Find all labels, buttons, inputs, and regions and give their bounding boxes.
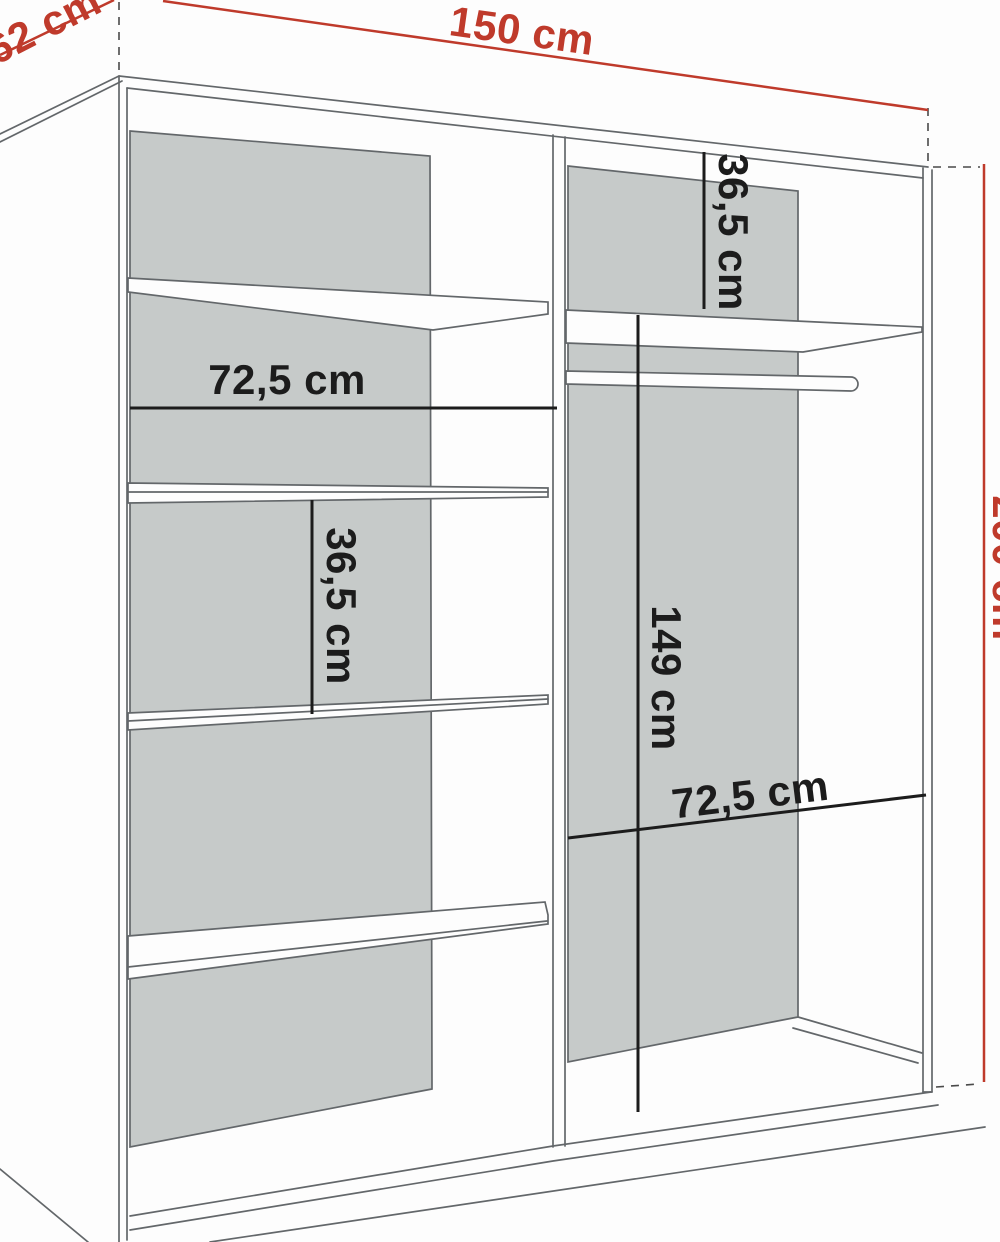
depth-label: 62 cm (0, 0, 108, 74)
extension-bottom-right (936, 1084, 979, 1087)
cabinet-structure (0, 76, 985, 1242)
right-top-shelf-offset-label: 36,5 cm (710, 153, 757, 311)
left-shelf-spacing-label: 36,5 cm (318, 527, 365, 685)
overall-width-label: 150 cm (447, 0, 598, 64)
wardrobe-diagram-canvas: 150 cm 62 cm 200 cm 72,5 cm 36,5 cm 36,5… (0, 0, 1000, 1242)
left-shelf-2 (128, 483, 548, 503)
overall-height-label: 200 cm (984, 495, 1000, 640)
left-side-bottom-edge (0, 1169, 88, 1242)
base-bottom-edge (210, 1127, 985, 1242)
left-section-width-label: 72,5 cm (208, 356, 366, 403)
wardrobe-dimension-diagram: 150 cm 62 cm 200 cm 72,5 cm 36,5 cm 36,5… (0, 0, 1000, 1242)
left-side-top-edge (0, 76, 119, 134)
left-side-top-edge-inner (0, 81, 122, 142)
hanging-space-height-label: 149 cm (643, 605, 690, 750)
